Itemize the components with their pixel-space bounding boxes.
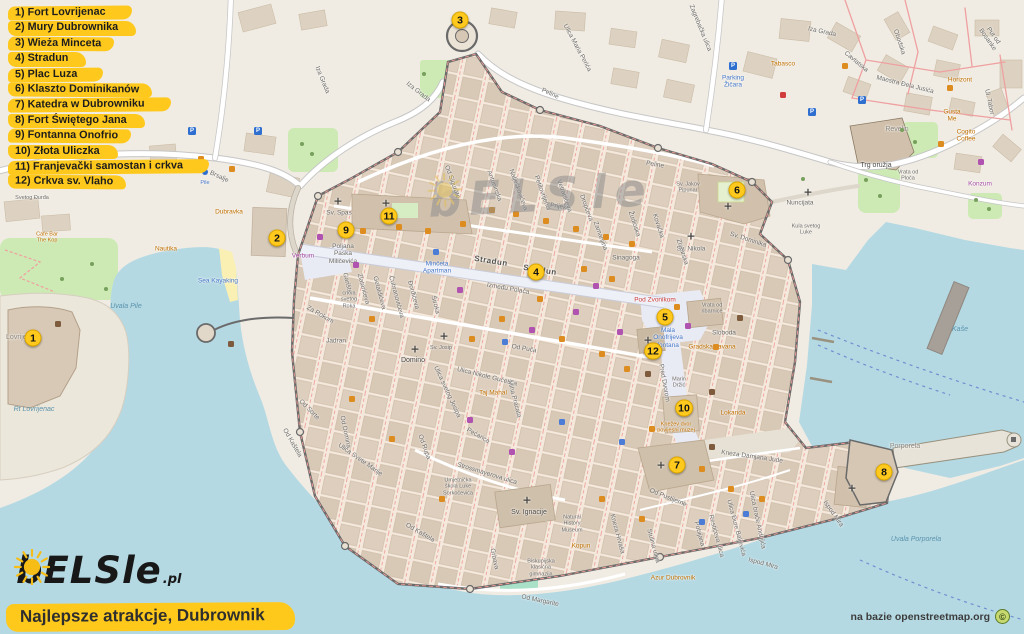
osm-attribution: na bazie openstreetmap.org © [851, 609, 1010, 624]
legend-item-10: 10) Złota Uliczka [8, 145, 118, 159]
map-label: Od Sorte [297, 398, 321, 422]
church-cross-icon: + [847, 483, 856, 494]
map-label: Peline [645, 160, 664, 170]
tree-icon [913, 140, 917, 144]
museum-icon [709, 389, 715, 395]
map-label: Od Kaštela [404, 522, 436, 545]
map-marker-10: 10 [675, 400, 693, 417]
belsole-logo: bELS le .pl [16, 549, 181, 592]
shop-icon [529, 327, 535, 333]
map-label: Žudioska [626, 210, 641, 237]
map-label: crkva svetog Roka [341, 291, 357, 310]
map-label: Konzum [968, 180, 992, 187]
map-label: Iza Grada [313, 65, 331, 94]
shop-icon [593, 283, 599, 289]
legend-item-7: 7) Katedra w Dubrowniku [8, 98, 171, 114]
map-label: Petilovrijenci [532, 175, 552, 212]
map-label: Kopun [572, 542, 591, 549]
tree-icon [900, 128, 904, 132]
map-label: Pred Dvorom [657, 363, 671, 402]
map-label: Vrata od ribarnice [701, 303, 722, 316]
map-label: Getaldićeva [371, 275, 387, 310]
restaurant-icon [674, 304, 680, 310]
map-label: Porporela [890, 443, 920, 451]
map-label: Zamanjina [591, 220, 608, 251]
map-label: Sv. Ignacije [511, 509, 547, 517]
logo-tld: .pl [163, 572, 182, 587]
restaurant-icon [842, 63, 848, 69]
map-label: Dropčeva [578, 194, 595, 223]
map-label: Tabasco [771, 60, 795, 67]
restaurant-icon [947, 85, 953, 91]
map-label: Poljana Paska Miličevića [329, 243, 357, 265]
map-label: Minčeta Apartman [423, 261, 451, 276]
restaurant-icon [389, 436, 395, 442]
map-label: Antuninska [485, 170, 503, 203]
map-label: Vetranićeva [555, 179, 574, 213]
tree-icon [60, 277, 64, 281]
museum-icon [55, 321, 61, 327]
legend-item-12: 12) Crkva sv. Vlaho [8, 175, 126, 190]
map-label: Sv. Dominika [729, 231, 767, 250]
map-label: Umjetnička škola Luke Sorkočevića [443, 478, 473, 497]
restaurant-icon [599, 496, 605, 502]
museum-icon [709, 444, 715, 450]
tree-icon [987, 207, 991, 211]
map-label: Uvala Pile [110, 303, 142, 311]
parking-icon: P [254, 127, 262, 135]
restaurant-icon [369, 316, 375, 322]
museum-icon [228, 341, 234, 347]
map-label: Put od Bosanke [974, 20, 1006, 56]
map-label: Prijeko [550, 202, 571, 212]
restaurant-icon [629, 241, 635, 247]
restaurant-icon [499, 316, 505, 322]
shop-icon [685, 323, 691, 329]
tree-icon [310, 152, 314, 156]
restaurant-icon [699, 466, 705, 472]
hotel-icon [502, 339, 508, 345]
map-marker-8: 8 [876, 464, 893, 481]
hotel-icon [559, 419, 565, 425]
restaurant-icon [229, 166, 235, 172]
hotel-icon [699, 519, 705, 525]
map-marker-11: 11 [380, 208, 397, 225]
legend-item-6: 6) Klaszto Dominikanów [8, 83, 152, 98]
map-label: Miha Pracata [505, 380, 522, 419]
church-cross-icon: + [723, 201, 732, 212]
map-marker-12: 12 [644, 343, 662, 360]
legend-item-3: 3) Wieża Minceta [8, 36, 114, 51]
tree-icon [104, 287, 108, 291]
map-label: Nalješkovićeva [507, 168, 529, 211]
map-label: Strossmayerova ulica [456, 461, 518, 486]
map-label: Brsalje [208, 169, 229, 184]
church-cross-icon: + [656, 460, 665, 471]
map-label: Ulica Svete Marije [336, 442, 383, 478]
legend-item-11: 11) Franjevački samostan i crkva [8, 159, 209, 175]
shop-icon [573, 309, 579, 315]
restaurant-icon [425, 228, 431, 234]
shop-icon [353, 262, 359, 268]
attractions-legend: 1) Fort Lovrijenac2) Mury Dubrownika3) W… [8, 6, 209, 190]
map-label: Sv. Nikola [677, 245, 706, 252]
shop-icon [978, 159, 984, 165]
map-label: Od Kaštela [281, 427, 304, 459]
map-label: Obodska [891, 28, 906, 55]
museum-icon [737, 315, 743, 321]
map-label: Svetog Đurđa [15, 195, 49, 201]
map-label: Rt Lovrijenac [14, 406, 55, 414]
restaurant-icon [439, 496, 445, 502]
map-label: Sv. Josip [430, 345, 452, 351]
map-label: Revelin [885, 126, 908, 134]
shop-icon [617, 329, 623, 335]
tree-icon [300, 142, 304, 146]
restaurant-icon [543, 218, 549, 224]
shop-icon [317, 234, 323, 240]
restaurant-icon [469, 336, 475, 342]
map-label: Čubranovićeva [387, 275, 405, 319]
restaurant-icon [759, 496, 765, 502]
map-label: Sv. Spas [326, 209, 352, 216]
map-label: Stradun [474, 254, 509, 268]
copyright-icon: © [995, 609, 1010, 624]
map-label: Lokanda [721, 409, 746, 416]
map-label: Nuncijata [786, 199, 813, 206]
map-label: Ulica Đure Baljevića [725, 499, 747, 557]
restaurant-icon [609, 276, 615, 282]
map-label: Od Puča [511, 343, 537, 355]
legend-item-5: 5) Plac Luza [8, 67, 104, 82]
map-marker-7: 7 [669, 457, 686, 474]
hotel-icon [619, 439, 625, 445]
map-marker-4: 4 [528, 264, 545, 281]
map-marker-1: 1 [25, 330, 42, 347]
legend-item-9: 9) Fontanna Onofrio [8, 129, 131, 144]
restaurant-icon [349, 396, 355, 402]
restaurant-icon [396, 224, 402, 230]
map-label: Ulica svetog Josipa [432, 365, 462, 419]
church-cross-icon: + [803, 187, 812, 198]
map-label: Ispod Mira [821, 499, 845, 528]
poster-title: Najlepsze atrakcje, Dubrownik [6, 602, 295, 632]
restaurant-icon [460, 221, 466, 227]
map-label: Maestra Đela Jusića [876, 74, 935, 95]
restaurant-icon [489, 207, 495, 213]
map-label: Pod Zvonikom [634, 296, 676, 303]
map-label: Sv. Jakov Pipunar [676, 182, 699, 195]
shop-icon [509, 449, 515, 455]
tree-icon [90, 262, 94, 266]
shop-icon [467, 417, 473, 423]
map-label: Verbum [292, 252, 314, 259]
map-label: Parking Žičara [722, 75, 744, 90]
map-label: Knežev dvor povijesni muzej [657, 422, 695, 435]
restaurant-icon [639, 516, 645, 522]
map-marker-6: 6 [729, 182, 746, 199]
map-label: Nautika [155, 245, 177, 252]
map-label: Sea Kayaking [198, 277, 238, 284]
map-label: Ispod Mira [747, 556, 778, 571]
restaurant-icon [713, 344, 719, 350]
attribution-text: na bazie openstreetmap.org [851, 611, 990, 623]
parking-icon: P [808, 108, 816, 116]
logo-text-right: le [122, 549, 162, 592]
map-label: Između Polača [486, 282, 530, 297]
map-label: Cogito Coffee [956, 129, 975, 144]
map-label: Iza Grada [404, 80, 431, 103]
map-label: Ul. Tabor [983, 89, 996, 116]
map-label: Zlatarićeva [355, 273, 370, 306]
map-label: Domino [401, 357, 425, 365]
map-label: Kaše [952, 326, 968, 334]
map-label: Uvala Porporela [891, 536, 941, 544]
map-label: Grbava [488, 548, 500, 570]
map-label: Vrata od Ploča [898, 170, 919, 183]
shop-icon [457, 287, 463, 293]
map-label: Sinagoga [612, 254, 639, 261]
hotel-icon [743, 511, 749, 517]
map-label: Stulina ulica [645, 528, 661, 564]
hotel-icon [433, 249, 439, 255]
map-label: Od Sigurate [443, 164, 462, 199]
map-label: Kula svetog Luke [792, 224, 821, 237]
map-label: Ulica Maria Perića [561, 23, 592, 73]
parking-icon: P [729, 62, 737, 70]
tree-icon [974, 198, 978, 202]
map-label: Đorđićeva [406, 280, 421, 310]
pharmacy-icon [780, 92, 786, 98]
map-label: Kneza Hrvaša [608, 513, 626, 554]
map-label: Cavtatska [843, 50, 870, 74]
map-label: Horizont [948, 76, 972, 83]
tree-icon [422, 72, 426, 76]
map-label: Pećarica [465, 426, 491, 445]
map-marker-2: 2 [269, 230, 286, 247]
map-label: Iza Grada [807, 25, 836, 38]
map-label: Zlatarska [674, 238, 689, 266]
map-label: Azur Dubrovnik [651, 574, 695, 581]
map-label: Cafe Bar The Kop [36, 232, 58, 245]
parking-icon: P [858, 96, 866, 104]
map-label: Od Rupa [416, 433, 432, 460]
map-label: Garište [341, 272, 354, 294]
map-label: Od Domina [338, 415, 352, 449]
map-label: Restićeva ulica [707, 514, 726, 558]
map-label: Marin Držić [672, 377, 686, 390]
map-poster: Zagrebačka ulicaIza GradaIza GradaIza Gr… [0, 0, 1024, 634]
map-label: Trg oružja [860, 162, 891, 170]
restaurant-icon [603, 234, 609, 240]
map-marker-3: 3 [452, 12, 469, 29]
map-label: Ulica braće Andrijića [747, 490, 767, 549]
restaurant-icon [649, 426, 655, 432]
tree-icon [801, 177, 805, 181]
map-label: Zagrebačka ulica [687, 4, 712, 53]
map-label: Od Margarite [521, 593, 560, 608]
sun-icon [14, 549, 50, 585]
legend-item-1: 1) Fort Lovrijenac [8, 5, 132, 20]
map-label: Kneza Damjana Jude [721, 449, 784, 465]
restaurant-icon [360, 228, 366, 234]
map-label: Sloboda [712, 329, 736, 336]
restaurant-icon [938, 141, 944, 147]
museum-icon [645, 371, 651, 377]
restaurant-icon [537, 296, 543, 302]
church-cross-icon: + [333, 196, 342, 207]
map-label: Široka [429, 295, 441, 315]
map-label: Pobijana [692, 521, 706, 547]
legend-item-4: 4) Stradun [8, 52, 86, 66]
map-label: Jadran [326, 337, 346, 344]
map-label: Peline [540, 87, 560, 101]
map-label: Ulica Nikole Gučetića [456, 366, 518, 388]
church-cross-icon: + [522, 495, 531, 506]
restaurant-icon [559, 336, 565, 342]
map-label: Gradska kavana [688, 343, 735, 350]
restaurant-icon [513, 211, 519, 217]
map-label: Taj Mahal [479, 389, 507, 396]
legend-item-8: 8) Fort Świętego Jana [8, 114, 145, 128]
restaurant-icon [581, 266, 587, 272]
map-marker-5: 5 [657, 309, 674, 326]
restaurant-icon [573, 226, 579, 232]
map-marker-9: 9 [338, 222, 355, 239]
map-label: Dubravka [215, 208, 243, 215]
tree-icon [878, 194, 882, 198]
map-label: Gusta Me [943, 109, 960, 124]
legend-item-2: 2) Mury Dubrownika [8, 21, 136, 35]
restaurant-icon [599, 351, 605, 357]
map-label: Za Rokom [305, 304, 335, 325]
restaurant-icon [728, 486, 734, 492]
restaurant-icon [624, 366, 630, 372]
map-label: Biskupijska klasična gimnazija [527, 559, 555, 578]
church-cross-icon: + [439, 331, 448, 342]
map-label: Natural History Museum [561, 515, 582, 534]
tree-icon [864, 178, 868, 182]
church-cross-icon: + [686, 231, 695, 242]
map-label: Od Pustijerne [648, 487, 687, 509]
church-cross-icon: + [410, 344, 419, 355]
map-label: Kovačka [651, 213, 666, 239]
